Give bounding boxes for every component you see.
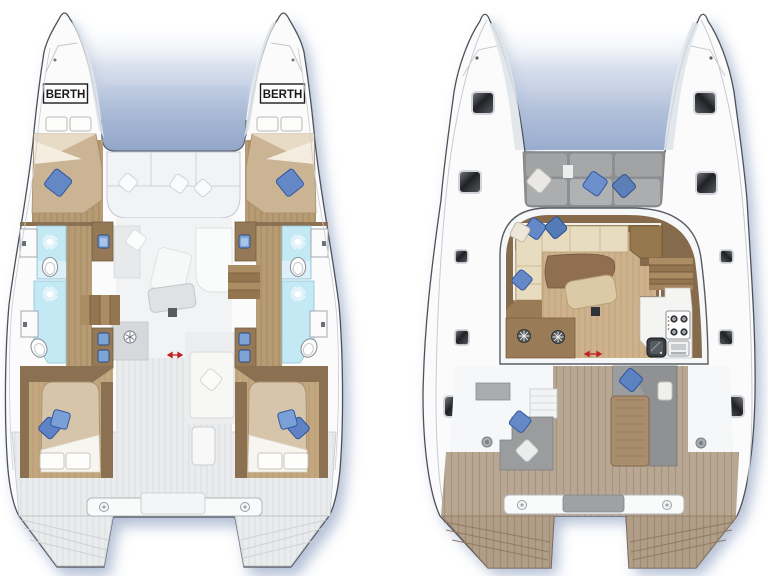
svg-text:BERTH: BERTH xyxy=(263,89,303,101)
svg-text:BERTH: BERTH xyxy=(46,89,86,101)
